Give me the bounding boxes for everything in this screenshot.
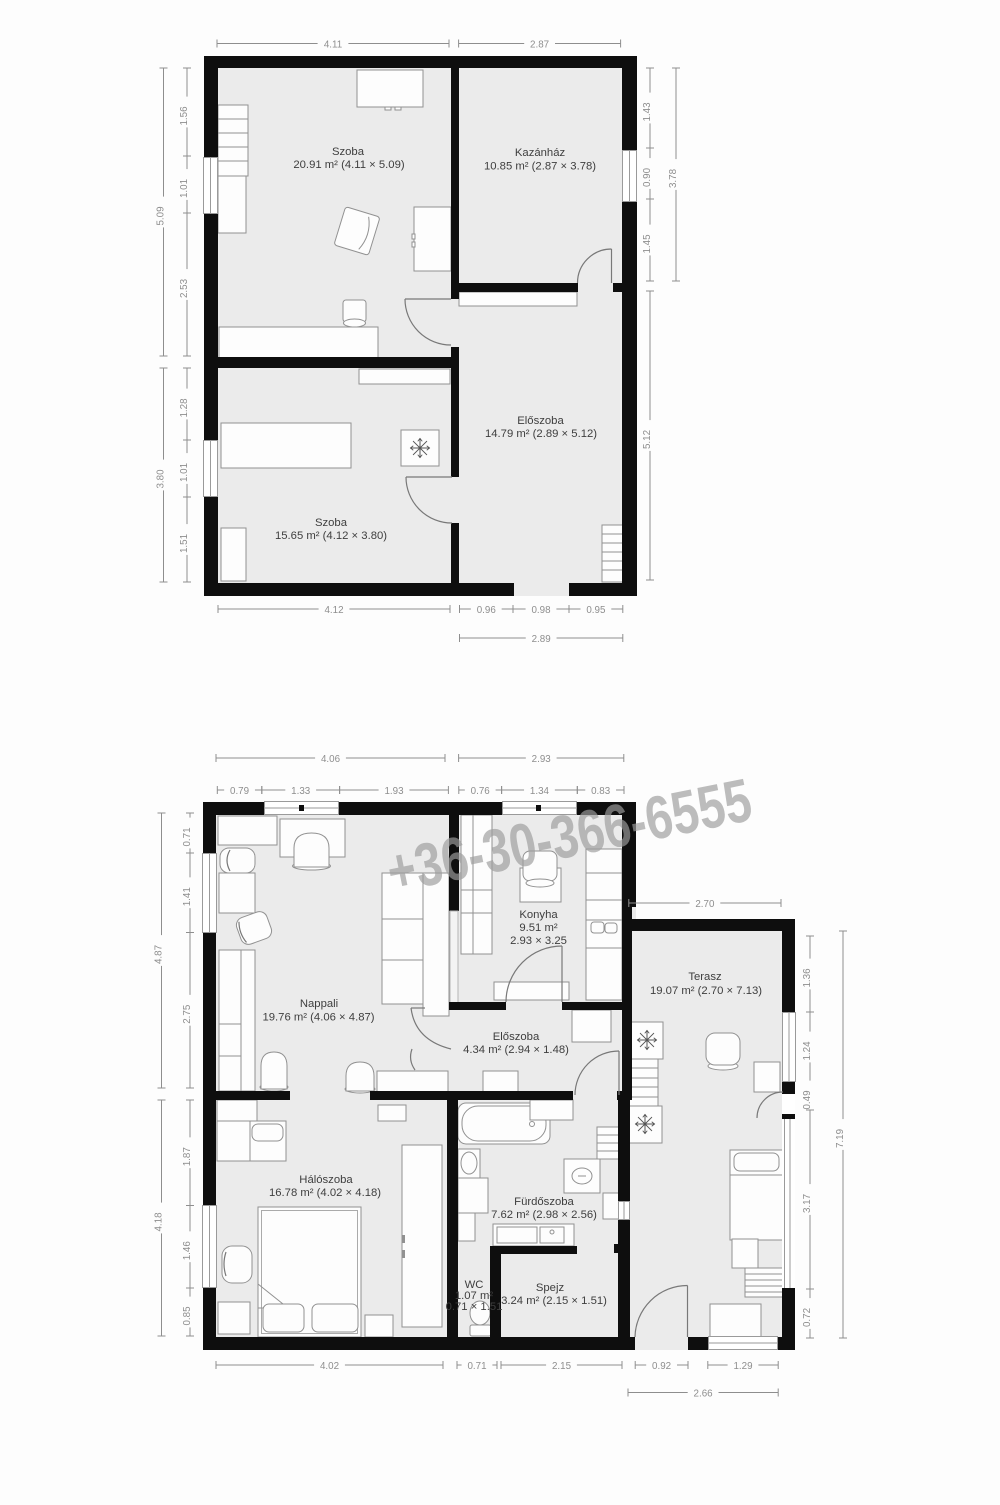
svg-text:1.43: 1.43	[642, 102, 653, 122]
svg-text:3.17: 3.17	[802, 1194, 813, 1213]
svg-text:1.51: 1.51	[179, 534, 190, 553]
svg-text:1.28: 1.28	[179, 398, 190, 418]
svg-text:5.12: 5.12	[642, 430, 653, 449]
svg-text:Hálószoba: Hálószoba	[299, 1174, 353, 1186]
svg-text:0.71: 0.71	[182, 827, 193, 846]
svg-text:7.62 m² (2.98 × 2.56): 7.62 m² (2.98 × 2.56)	[491, 1209, 597, 1221]
svg-text:1.45: 1.45	[642, 234, 653, 254]
svg-text:Terasz: Terasz	[688, 971, 722, 983]
svg-text:2.75: 2.75	[182, 1004, 193, 1024]
svg-text:4.06: 4.06	[321, 754, 341, 765]
svg-text:0.71 × 1.51: 0.71 × 1.51	[446, 1301, 503, 1313]
svg-text:1.41: 1.41	[182, 887, 193, 906]
svg-text:Előszoba: Előszoba	[517, 415, 564, 427]
svg-text:Fürdőszoba: Fürdőszoba	[514, 1196, 574, 1208]
svg-text:4.18: 4.18	[154, 1212, 165, 1232]
svg-text:4.11: 4.11	[324, 40, 342, 51]
svg-text:0.95: 0.95	[586, 605, 606, 616]
svg-text:7.19: 7.19	[835, 1129, 846, 1148]
svg-text:Nappali: Nappali	[300, 998, 338, 1010]
svg-text:3.78: 3.78	[668, 168, 679, 188]
svg-text:2.87: 2.87	[530, 40, 549, 51]
svg-text:1.01: 1.01	[179, 463, 190, 482]
svg-text:19.07 m² (2.70 × 7.13): 19.07 m² (2.70 × 7.13)	[650, 985, 762, 997]
svg-text:10.85 m² (2.87 × 3.78): 10.85 m² (2.87 × 3.78)	[484, 161, 596, 173]
svg-text:Kazánház: Kazánház	[515, 147, 566, 159]
svg-text:0.92: 0.92	[652, 1361, 671, 1372]
svg-text:4.87: 4.87	[154, 945, 165, 964]
svg-text:1.24: 1.24	[802, 1041, 813, 1061]
svg-text:1.34: 1.34	[530, 786, 550, 797]
svg-text:1.01: 1.01	[179, 179, 190, 198]
svg-text:1.29: 1.29	[733, 1361, 752, 1372]
svg-text:2.53: 2.53	[179, 278, 190, 298]
svg-text:4.02: 4.02	[320, 1361, 339, 1372]
svg-text:0.79: 0.79	[230, 786, 249, 797]
svg-text:1.36: 1.36	[802, 968, 813, 988]
svg-text:0.71: 0.71	[467, 1361, 486, 1372]
svg-text:16.78 m² (4.02 × 4.18): 16.78 m² (4.02 × 4.18)	[269, 1187, 381, 1199]
svg-text:2.93: 2.93	[532, 754, 552, 765]
svg-text:Szoba: Szoba	[315, 517, 348, 529]
svg-text:9.51 m²: 9.51 m²	[519, 922, 558, 934]
svg-text:1.33: 1.33	[291, 786, 311, 797]
svg-text:2.93 × 3.25: 2.93 × 3.25	[510, 935, 567, 947]
svg-text:2.89: 2.89	[532, 634, 551, 645]
svg-text:0.49: 0.49	[802, 1090, 813, 1109]
svg-text:2.70: 2.70	[695, 899, 715, 910]
svg-text:19.76 m² (4.06 × 4.87): 19.76 m² (4.06 × 4.87)	[262, 1012, 374, 1024]
svg-text:0.85: 0.85	[182, 1306, 193, 1326]
svg-text:0.72: 0.72	[802, 1308, 813, 1327]
svg-text:5.09: 5.09	[156, 206, 167, 225]
svg-text:1.87: 1.87	[182, 1147, 193, 1166]
svg-text:3.24 m² (2.15 × 1.51): 3.24 m² (2.15 × 1.51)	[501, 1295, 607, 1307]
svg-text:1.56: 1.56	[179, 106, 190, 126]
svg-text:0.76: 0.76	[471, 786, 491, 797]
svg-text:4.12: 4.12	[324, 605, 343, 616]
svg-text:3.80: 3.80	[156, 469, 167, 489]
svg-text:2.15: 2.15	[552, 1361, 572, 1372]
svg-text:14.79 m² (2.89 × 5.12): 14.79 m² (2.89 × 5.12)	[485, 428, 597, 440]
svg-text:0.96: 0.96	[477, 605, 497, 616]
svg-text:Spejz: Spejz	[536, 1282, 565, 1294]
svg-text:Szoba: Szoba	[332, 146, 365, 158]
svg-text:4.34 m² (2.94 × 1.48): 4.34 m² (2.94 × 1.48)	[463, 1044, 569, 1056]
svg-text:15.65 m² (4.12 × 3.80): 15.65 m² (4.12 × 3.80)	[275, 530, 387, 542]
svg-text:20.91 m² (4.11 × 5.09): 20.91 m² (4.11 × 5.09)	[293, 159, 404, 171]
svg-text:Konyha: Konyha	[519, 909, 558, 921]
svg-text:1.46: 1.46	[182, 1241, 193, 1261]
svg-text:0.98: 0.98	[531, 605, 551, 616]
svg-text:Előszoba: Előszoba	[493, 1031, 540, 1043]
svg-text:1.93: 1.93	[384, 786, 404, 797]
svg-text:0.90: 0.90	[642, 167, 653, 187]
svg-text:2.66: 2.66	[694, 1389, 714, 1400]
